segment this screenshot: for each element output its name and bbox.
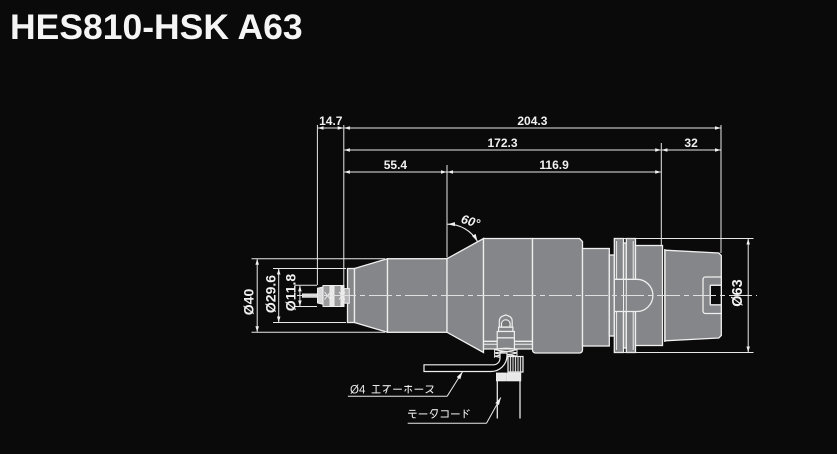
svg-text:Ø63: Ø63 — [730, 279, 746, 306]
svg-text:Ø11.8: Ø11.8 — [283, 274, 299, 312]
svg-text:116.9: 116.9 — [539, 158, 569, 172]
svg-text:172.3: 172.3 — [487, 136, 517, 150]
svg-text:55.4: 55.4 — [384, 158, 408, 172]
svg-text:14.7: 14.7 — [319, 114, 343, 128]
svg-text:60°: 60° — [459, 212, 482, 231]
svg-text:Ø40: Ø40 — [241, 289, 257, 316]
svg-text:204.3: 204.3 — [517, 114, 547, 128]
svg-text:Ø29.6: Ø29.6 — [263, 275, 279, 313]
svg-text:32: 32 — [684, 136, 698, 150]
svg-text:Ø4: Ø4 — [350, 384, 366, 396]
